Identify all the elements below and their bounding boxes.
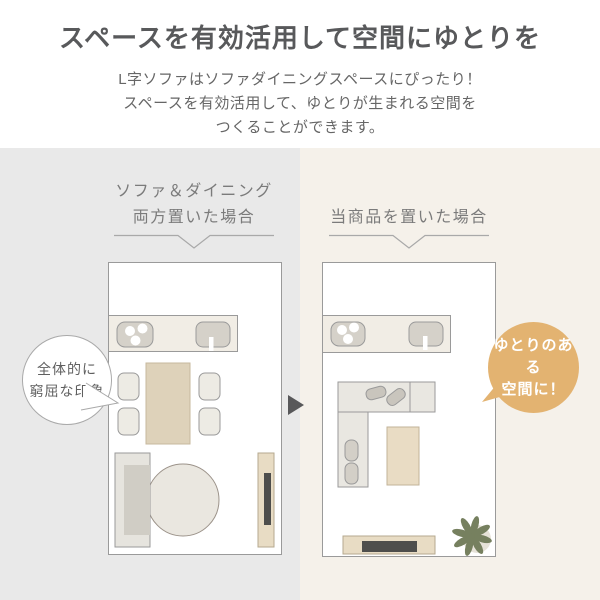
subtitle-line-2: スペースを有効活用して、ゆとりが生まれる空間を (0, 92, 600, 116)
badge-line-2: 空間に！ (501, 379, 565, 401)
header: スペースを有効活用して空間にゆとりを L字ソファはソファダイニングスペースにぴっ… (0, 0, 600, 148)
sofa-cushion (345, 440, 358, 461)
sink-icon (409, 322, 443, 350)
left-panel-label-line-2: 両方置いた場合 (107, 205, 281, 231)
chevron-down-icon (329, 234, 489, 250)
tv-screen (264, 473, 271, 525)
page-title: スペースを有効活用して空間にゆとりを (0, 0, 600, 55)
sink-icon (196, 322, 230, 351)
stove-icon (331, 322, 365, 346)
arrow-right-icon (288, 395, 304, 415)
round-rug (147, 464, 219, 536)
dining-table (146, 363, 190, 444)
subtitle-line-1: L字ソファはソファダイニングスペースにぴったり！ (0, 68, 600, 92)
panel-this-product: 当商品を置いた場合 (300, 148, 600, 600)
tv-board (343, 536, 435, 554)
floorplan-this-product (322, 262, 496, 557)
sofa-cushion (345, 463, 358, 484)
badge-line-1: ゆとりのある (488, 335, 579, 379)
chevron-down-icon (114, 234, 274, 250)
left-panel-label: ソファ＆ダイニング 両方置いた場合 (107, 175, 281, 231)
stove-icon (117, 322, 153, 347)
page-subtitle: L字ソファはソファダイニングスペースにぴったり！ スペースを有効活用して、ゆとり… (0, 68, 600, 140)
left-panel-label-line-1: ソファ＆ダイニング (107, 179, 281, 205)
infographic-page: スペースを有効活用して空間にゆとりを L字ソファはソファダイニングスペースにぴっ… (0, 0, 600, 600)
dining-chair (199, 373, 220, 400)
right-panel-label-line: 当商品を置いた場合 (322, 205, 496, 231)
dining-chair (199, 408, 220, 435)
bubble-line-1: 全体的に (37, 358, 97, 380)
bubble-tail (78, 381, 123, 416)
right-panel-label: 当商品を置いた場合 (322, 175, 496, 231)
sofa (115, 453, 150, 547)
panel-sofa-and-dining: ソファ＆ダイニング 両方置いた場合 (0, 148, 300, 600)
tv-screen (362, 541, 417, 552)
spacious-room-badge: ゆとりのある 空間に！ (488, 322, 579, 413)
subtitle-line-3: つくることができます。 (0, 116, 600, 140)
floorplan-sofa-and-dining (108, 262, 282, 555)
coffee-table (387, 427, 419, 485)
tv-board (258, 453, 274, 547)
